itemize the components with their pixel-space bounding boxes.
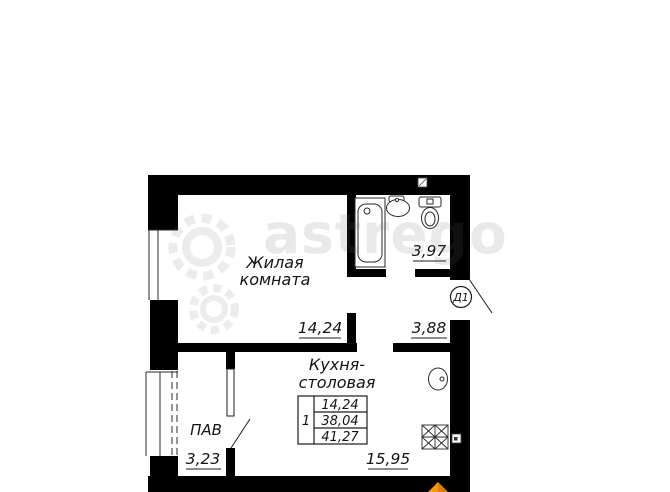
- watermark-gears: [173, 218, 235, 330]
- watermark-text: astrego: [263, 207, 508, 262]
- watermark-logo-triangle: [428, 482, 448, 492]
- gear-icon: [173, 218, 231, 276]
- gear-icon: [193, 288, 235, 330]
- floorplan-image: Жилая комната 14,24 3,97 3,88 Кухня- сто…: [0, 0, 670, 492]
- logo-triangle-shade: [438, 482, 448, 492]
- gear-icon: [186, 231, 218, 263]
- gear-icon: [203, 298, 225, 320]
